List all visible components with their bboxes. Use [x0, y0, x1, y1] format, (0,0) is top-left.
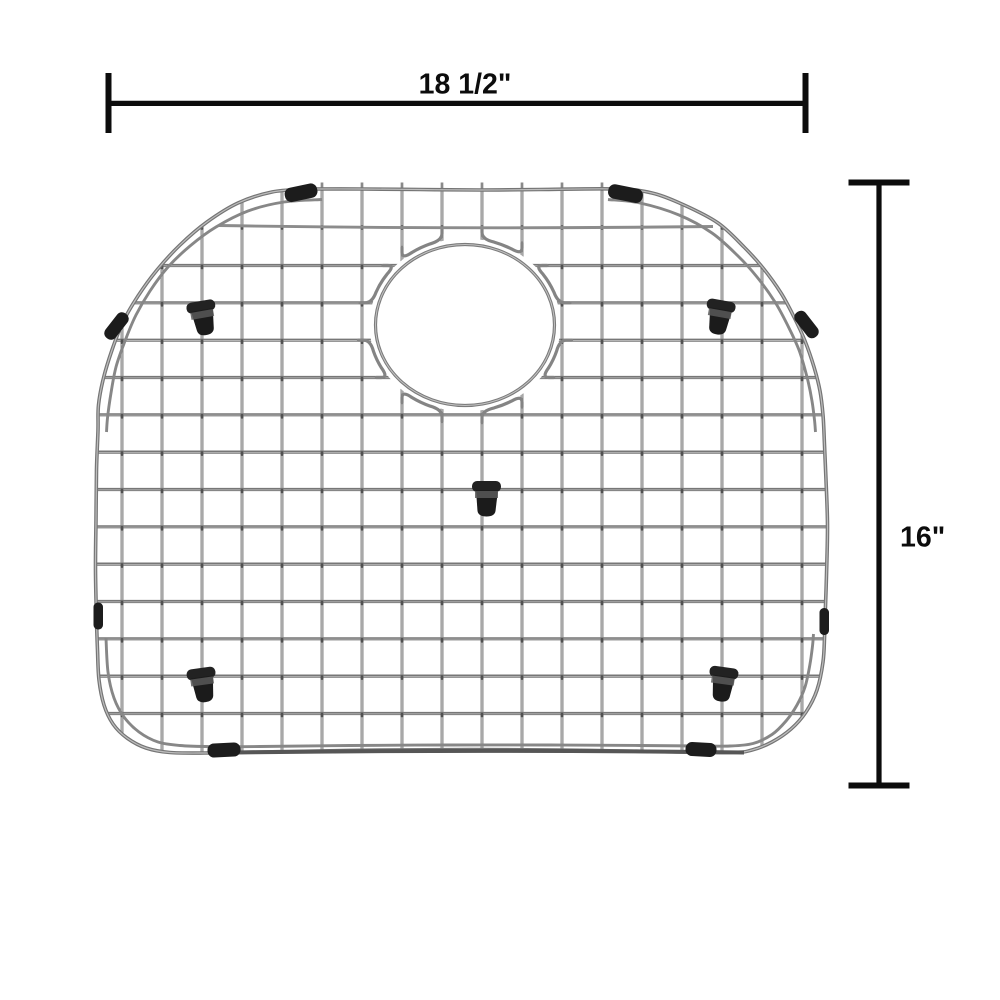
svg-text:18 1/2": 18 1/2": [419, 69, 512, 101]
svg-text:16": 16": [900, 522, 945, 554]
